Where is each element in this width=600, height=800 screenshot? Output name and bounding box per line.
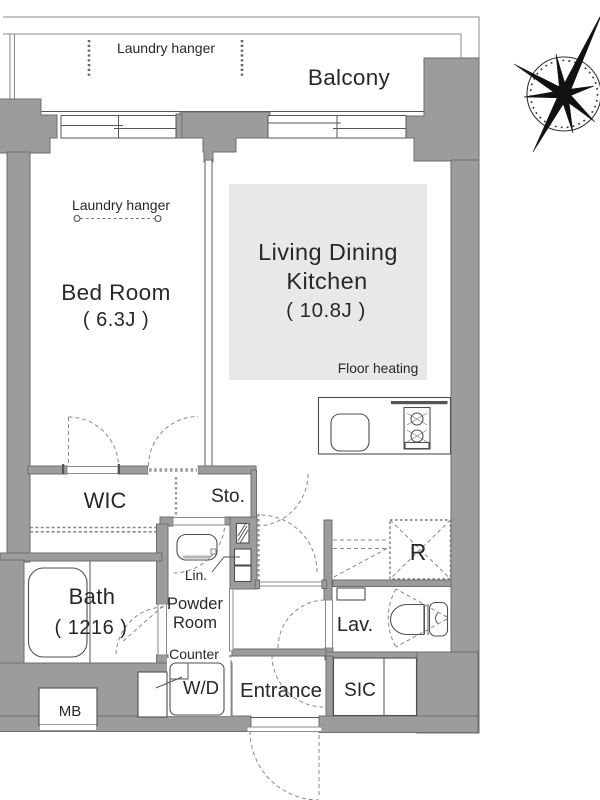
svg-text:SIC: SIC [344,680,376,701]
svg-text:Lin.: Lin. [185,568,207,583]
svg-text:Bed Room: Bed Room [61,280,171,305]
svg-text:Sto.: Sto. [211,486,245,507]
svg-text:Laundry hanger: Laundry hanger [117,40,215,56]
svg-text:Bath: Bath [69,584,116,609]
svg-text:Laundry hanger: Laundry hanger [72,197,170,213]
svg-text:Powder: Powder [167,595,223,613]
svg-text:( 10.8J ): ( 10.8J ) [286,299,366,322]
svg-text:Room: Room [173,614,217,632]
svg-text:Floor heating: Floor heating [338,361,419,376]
svg-text:WIC: WIC [84,488,127,513]
svg-text:MB: MB [59,703,82,720]
svg-text:( 1216 ): ( 1216 ) [55,617,128,639]
svg-text:( 6.3J ): ( 6.3J ) [83,309,149,331]
svg-text:R: R [410,539,427,565]
svg-text:Counter: Counter [169,646,219,662]
svg-text:Lav.: Lav. [337,614,373,636]
svg-text:W/D: W/D [183,677,219,698]
svg-text:Kitchen: Kitchen [286,268,367,294]
svg-text:Living Dining: Living Dining [258,239,398,265]
svg-text:Entrance: Entrance [240,679,322,702]
svg-text:Balcony: Balcony [308,65,391,90]
